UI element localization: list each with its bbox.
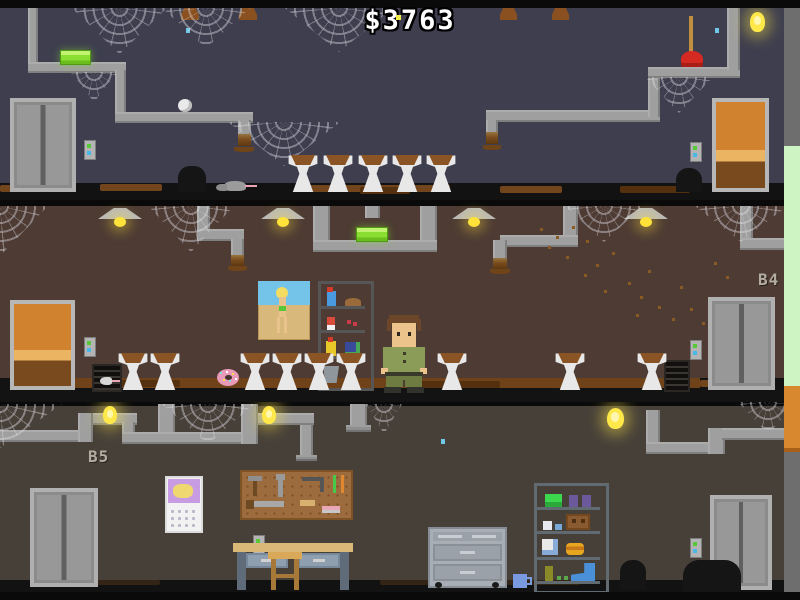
leak-stain <box>483 145 501 150</box>
ceiling-lamp <box>261 208 305 234</box>
elevator[interactable] <box>708 297 775 390</box>
pipe <box>486 110 660 122</box>
elevator-call-panel[interactable] <box>690 340 702 360</box>
bench-top <box>233 543 353 552</box>
edge-strip-grey-top <box>784 8 800 146</box>
ceiling-lamp <box>98 208 142 234</box>
pegboard <box>240 470 353 520</box>
leak-stain <box>234 147 254 152</box>
shirt <box>383 347 425 373</box>
burger <box>566 543 584 555</box>
rust-leak <box>493 258 507 269</box>
drawer-handle <box>460 551 475 554</box>
pipe <box>78 413 93 442</box>
money-display: $3763 <box>330 5 490 36</box>
soap-pickup[interactable] <box>356 227 388 242</box>
lamp-bulb <box>468 217 480 227</box>
dirty-sink[interactable] <box>637 352 667 390</box>
dirty-sink[interactable] <box>288 154 318 192</box>
square-tool-leg <box>320 477 324 492</box>
lamp-bulb <box>277 217 289 227</box>
calendar-grid <box>169 508 199 528</box>
ceiling-light <box>103 406 117 424</box>
soap-pickup[interactable] <box>60 50 91 65</box>
dirty-sink[interactable] <box>426 154 456 192</box>
blue-boot <box>571 563 595 581</box>
fly-swarm <box>540 228 543 231</box>
floor-b5: B5 <box>0 402 800 592</box>
lamp-bulb <box>640 217 652 227</box>
shelf-board <box>537 507 600 510</box>
cherries <box>347 320 351 324</box>
spray-cap <box>328 337 333 342</box>
donut-pickup[interactable] <box>217 369 239 386</box>
tool-cabinet <box>428 527 507 588</box>
dirt-patch <box>100 184 162 191</box>
drawer-handle <box>472 535 496 538</box>
rat-tail <box>245 185 257 187</box>
door-call-panel[interactable] <box>84 337 96 357</box>
janitor-character <box>377 315 431 393</box>
dirty-sink[interactable] <box>304 352 334 390</box>
photo-box <box>542 539 558 555</box>
calendar <box>165 476 203 533</box>
bench-leg <box>340 552 349 590</box>
hat <box>345 298 361 306</box>
door-call-panel[interactable] <box>690 142 702 162</box>
saw-blade <box>254 501 284 507</box>
pipe-stub <box>493 240 507 260</box>
dirty-sink[interactable] <box>437 352 467 390</box>
brick-wall <box>0 406 800 580</box>
green-box <box>545 494 562 507</box>
calendar-picture-blob <box>173 484 193 498</box>
ceiling-stub <box>350 404 367 427</box>
hammer-handle <box>253 481 257 496</box>
hair-side <box>387 319 391 331</box>
pipe <box>646 442 712 454</box>
leg-gap <box>403 380 405 387</box>
leak-stain <box>490 269 510 274</box>
cleaner-can <box>327 317 335 330</box>
pipe <box>115 70 126 116</box>
shelf-board <box>321 330 365 333</box>
pipe <box>727 8 740 70</box>
edge-strip-grey-bottom <box>784 452 800 592</box>
ceiling-flange <box>500 8 517 20</box>
rat-body <box>224 181 246 191</box>
wooden-door[interactable] <box>10 300 75 390</box>
elevator[interactable] <box>30 488 98 587</box>
bench-leg <box>237 552 246 590</box>
ceiling-light <box>262 406 276 424</box>
floor-b4: B4 <box>0 200 800 402</box>
dirty-sink[interactable] <box>358 154 388 192</box>
ceiling-light <box>607 408 624 429</box>
spray-bottle <box>327 291 336 306</box>
edge-strip-orange <box>784 386 800 452</box>
elevator-call-panel[interactable] <box>84 140 96 160</box>
rat-head <box>216 184 227 191</box>
floor-grate <box>664 360 690 392</box>
face <box>392 323 416 347</box>
pinup-poster <box>258 281 310 340</box>
mug-handle <box>526 577 532 585</box>
lamp-bulb <box>114 217 126 227</box>
stool-seat <box>268 552 302 559</box>
dirty-sink[interactable] <box>323 154 353 192</box>
wrench-shaft <box>278 480 283 497</box>
wooden-door[interactable] <box>712 98 769 192</box>
dirty-sink[interactable] <box>555 352 585 390</box>
shelf-snack <box>300 500 315 506</box>
bottle <box>545 566 553 581</box>
mouse <box>100 376 120 385</box>
purple-jar <box>569 495 578 507</box>
wall-hole <box>676 168 702 192</box>
dirty-sink[interactable] <box>392 154 422 192</box>
drawer-handle <box>460 571 475 574</box>
stool-bar <box>271 574 299 578</box>
floor-top-basement <box>0 8 800 200</box>
trash-pile <box>683 560 741 592</box>
eye <box>397 332 400 336</box>
storage-shelf <box>534 483 609 592</box>
shelf-board <box>537 531 600 534</box>
saw-handle <box>246 500 254 509</box>
ceiling-stub <box>365 206 380 218</box>
spray-nozzle <box>327 287 333 292</box>
shelf-board <box>537 557 600 560</box>
shelf-board <box>537 581 600 584</box>
dirty-sink[interactable] <box>150 352 180 390</box>
wheel <box>492 582 499 588</box>
purple-jar <box>582 495 591 507</box>
trash-pile <box>620 560 646 590</box>
button <box>403 352 406 355</box>
pipe <box>300 425 313 457</box>
small-items <box>557 576 561 580</box>
blue-tin <box>555 524 562 530</box>
crate-dots <box>572 519 576 523</box>
shoe <box>407 387 424 393</box>
floor-bar <box>0 592 800 600</box>
floor-label-b5: B5 <box>88 447 109 466</box>
money-sparkle <box>396 15 401 20</box>
plunger-handle[interactable] <box>689 16 693 52</box>
mouse-hole <box>178 166 206 192</box>
crate <box>566 514 590 530</box>
white-jar <box>543 521 552 530</box>
poster-leg <box>277 317 280 333</box>
dirty-sink[interactable] <box>336 352 366 390</box>
poster-leg <box>284 317 287 333</box>
ceiling-lamp <box>452 208 496 234</box>
water-drip <box>715 28 719 33</box>
poster-bikini <box>279 306 286 311</box>
ceiling-light <box>750 12 765 32</box>
elevator-call-panel[interactable] <box>690 538 702 558</box>
shelf-board <box>321 306 365 309</box>
ceiling-flange <box>552 8 569 20</box>
plunger-pickup[interactable] <box>681 51 703 67</box>
dirty-sink[interactable] <box>272 352 302 390</box>
shoe <box>384 387 401 393</box>
leak-stain <box>228 266 247 271</box>
elevator[interactable] <box>10 98 76 192</box>
screwdriver-orange-icon <box>341 475 344 493</box>
pipe-endcap <box>296 455 317 461</box>
edge-strip-green <box>784 146 800 386</box>
drawer-handle <box>438 535 462 538</box>
mouse-body <box>100 377 112 385</box>
hair-side <box>417 319 421 331</box>
stub-flange <box>346 425 371 432</box>
pipe <box>122 432 160 444</box>
floor-label-b4: B4 <box>758 270 779 289</box>
dirt-patch <box>500 186 562 193</box>
pipe <box>115 112 253 123</box>
rat <box>216 178 258 192</box>
water-drip <box>441 439 445 444</box>
stool <box>268 552 302 590</box>
rust-leak <box>486 132 498 144</box>
mug <box>513 574 527 588</box>
shelf-plate <box>322 506 340 510</box>
drawer-handle <box>313 559 325 562</box>
screwdriver-green-icon <box>333 475 336 493</box>
dirty-sink[interactable] <box>240 352 270 390</box>
pipe <box>500 235 578 247</box>
wheel <box>435 582 442 588</box>
spider-egg <box>178 99 192 112</box>
game-viewport: $3763 <box>0 0 800 600</box>
rust-leak <box>231 255 244 266</box>
dirty-sink[interactable] <box>118 352 148 390</box>
